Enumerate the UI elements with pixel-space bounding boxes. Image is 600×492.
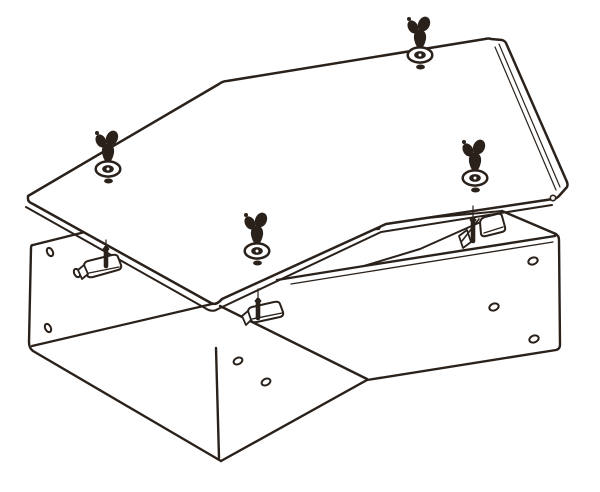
exploded-duct-illustration-page xyxy=(0,0,600,492)
wing-nut-tip-dot xyxy=(407,17,411,21)
wing-nut-tip-dot xyxy=(95,131,99,135)
stud-pin-cap xyxy=(255,299,262,303)
washer-pinhole xyxy=(474,177,477,180)
wing-nut-tip-dot xyxy=(462,140,466,144)
washer-pinhole xyxy=(107,168,110,171)
screw-stem-dot xyxy=(104,179,113,184)
cover-rivet-hole xyxy=(550,195,555,200)
screw-stem-dot xyxy=(416,65,425,70)
washer-pinhole xyxy=(256,250,259,253)
screw-stem-dot xyxy=(471,188,480,193)
exploded-duct-illustration xyxy=(0,0,600,492)
screw-stem-dot xyxy=(253,261,262,266)
washer-pinhole xyxy=(419,54,422,57)
wing-nut-tip-dot xyxy=(244,213,248,217)
stud-pin-cap xyxy=(470,218,477,222)
stud-pin-cap xyxy=(103,247,110,251)
